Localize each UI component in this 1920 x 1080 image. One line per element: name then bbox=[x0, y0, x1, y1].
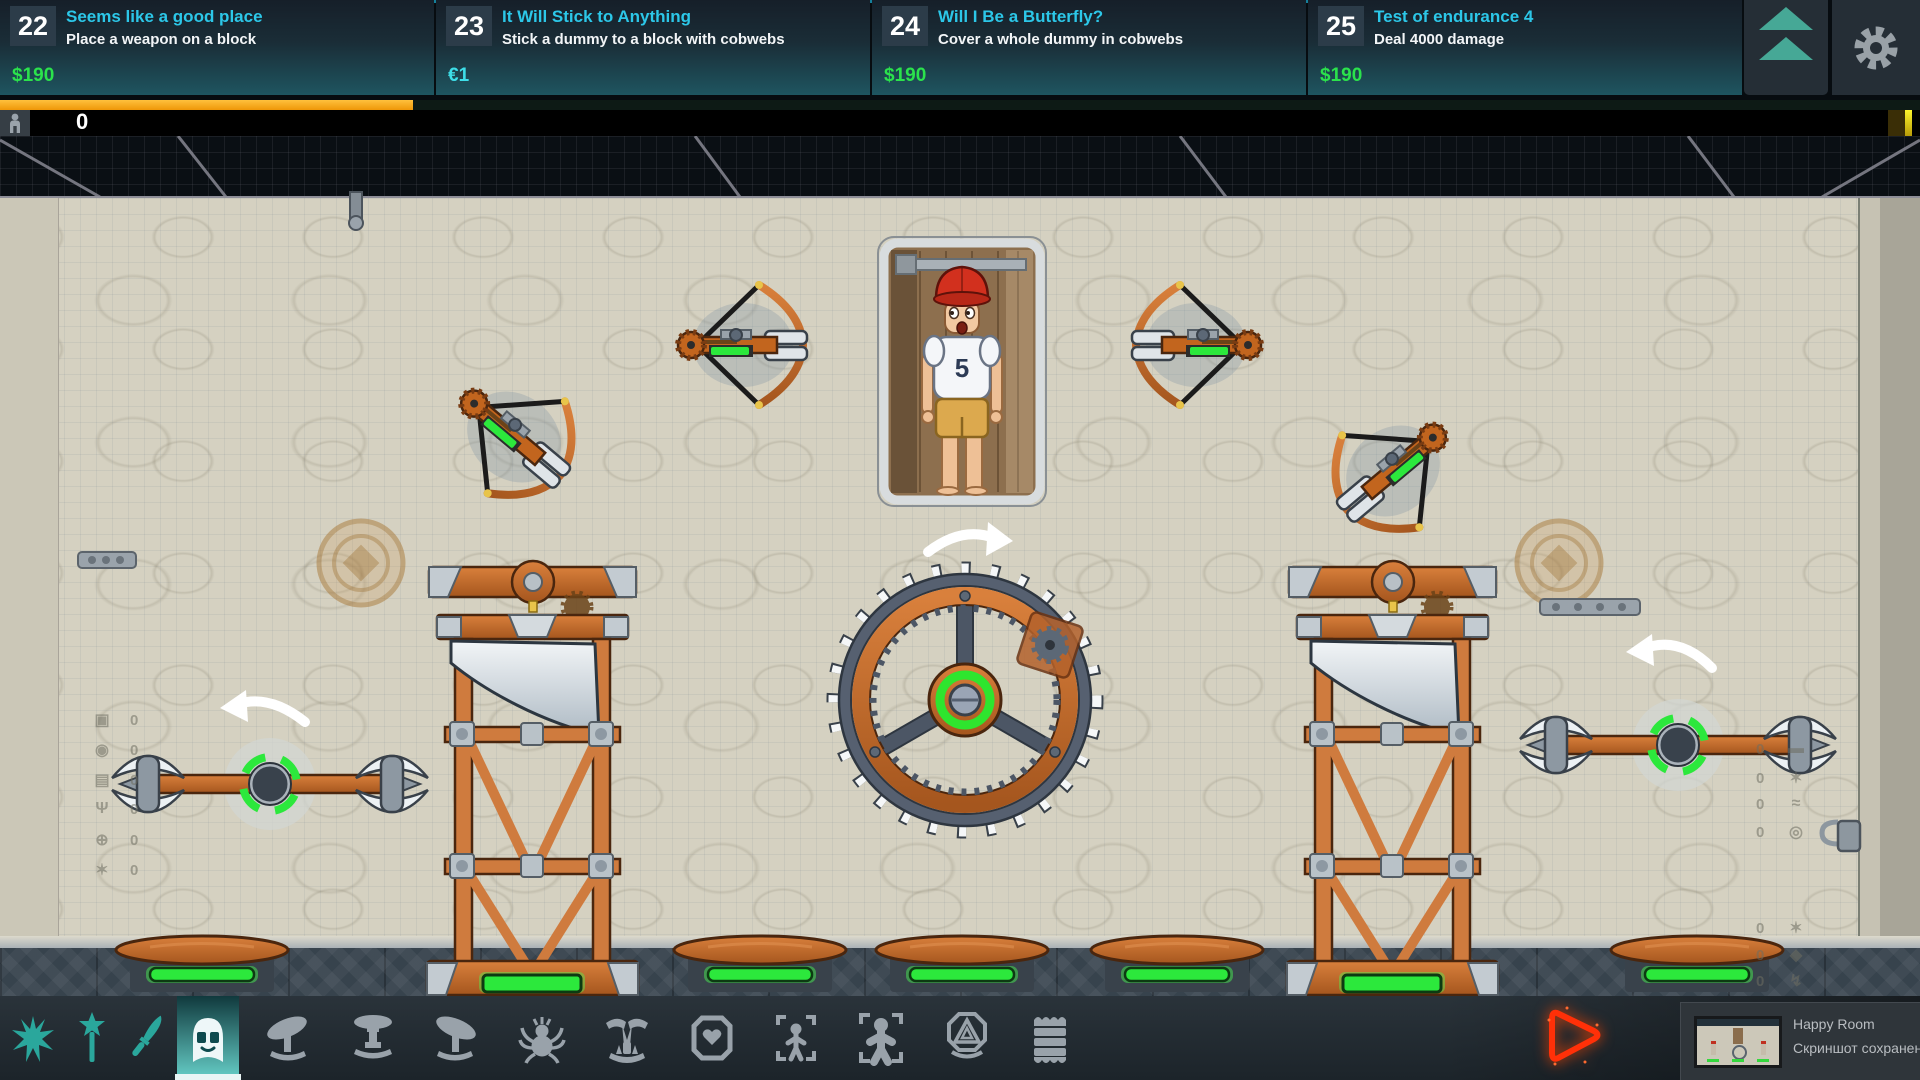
quest-title: Will I Be a Butterfly? bbox=[938, 7, 1103, 27]
quest-description: Place a weapon on a block bbox=[66, 31, 256, 48]
floor-pad bbox=[1611, 936, 1783, 992]
quest-bar: 22 Seems like a good place Place a weapo… bbox=[0, 0, 1920, 100]
damage-goal-zone bbox=[1888, 110, 1905, 136]
floor-pad bbox=[116, 936, 288, 992]
knife-icon bbox=[123, 1010, 171, 1066]
quest-reward: $190 bbox=[1320, 65, 1362, 87]
damage-counter: 0 bbox=[76, 109, 88, 135]
quest-reward: $190 bbox=[12, 65, 54, 87]
guillotine-right[interactable] bbox=[1287, 561, 1498, 995]
rune-emblem-icon bbox=[943, 1010, 991, 1066]
scene-objects: 5 bbox=[0, 136, 1920, 996]
rotation-arrow-right-spinner bbox=[1626, 634, 1712, 668]
settings-button[interactable] bbox=[1832, 0, 1920, 95]
wall-rosette-right bbox=[1517, 521, 1601, 605]
quest-description: Cover a whole dummy in cobwebs bbox=[938, 31, 1183, 48]
rotation-arrow-left-spinner bbox=[220, 690, 305, 722]
padlock bbox=[1822, 821, 1860, 851]
crossbow-1[interactable] bbox=[423, 346, 604, 527]
spider-icon bbox=[518, 1010, 566, 1066]
spikes-icon bbox=[9, 1010, 57, 1066]
floor-pad bbox=[674, 936, 846, 992]
screenshot-thumbnail bbox=[1694, 1016, 1782, 1068]
damage-goal-marker bbox=[1905, 110, 1912, 136]
quest-title: It Will Stick to Anything bbox=[502, 7, 691, 27]
claw-trap-icon bbox=[603, 1010, 651, 1066]
quest-progress-fill bbox=[0, 100, 413, 110]
play-button[interactable] bbox=[1537, 1000, 1609, 1072]
tool-saw-launcher-left[interactable] bbox=[257, 996, 319, 1080]
quest-title: Test of endurance 4 bbox=[1374, 7, 1533, 27]
quest-progress-track bbox=[0, 100, 1920, 110]
notification-message: Скриншот сохранен bbox=[1793, 1040, 1920, 1056]
quest-number: 25 bbox=[1318, 6, 1364, 46]
saw-launcher-left-icon bbox=[264, 1010, 312, 1066]
tool-spikes[interactable] bbox=[2, 996, 64, 1080]
floor-pad bbox=[1091, 936, 1263, 992]
quest-reward: $190 bbox=[884, 65, 926, 87]
person-icon bbox=[7, 113, 23, 133]
quest-number: 24 bbox=[882, 6, 928, 46]
saw-launcher-right-icon bbox=[431, 1010, 479, 1066]
axe-spinner-right[interactable] bbox=[1520, 699, 1836, 791]
tool-knife[interactable] bbox=[116, 996, 178, 1080]
quest-description: Stick a dummy to a block with cobwebs bbox=[502, 31, 785, 48]
quest-card-25[interactable]: 25 Test of endurance 4 Deal 4000 damage … bbox=[1308, 0, 1742, 95]
press-table-icon bbox=[349, 1010, 397, 1066]
weapon-toolbar bbox=[0, 996, 1920, 1080]
tool-spider[interactable] bbox=[511, 996, 573, 1080]
screenshot-notification: Happy Room Скриншот сохранен bbox=[1680, 1002, 1920, 1080]
ceiling-lines bbox=[0, 136, 1920, 197]
tool-coil-stack[interactable] bbox=[1019, 996, 1081, 1080]
player-chip bbox=[0, 110, 30, 136]
quest-panel-toggle-button[interactable] bbox=[1744, 0, 1828, 95]
happy-room-screen: 22 Seems like a good place Place a weapo… bbox=[0, 0, 1920, 1080]
crossbow-2[interactable] bbox=[678, 281, 807, 409]
room-scene: 5 ▣ 0 ◉ 0 ▤ 0 bbox=[0, 136, 1920, 996]
tool-press-table[interactable] bbox=[342, 996, 404, 1080]
wall-rosette-left bbox=[319, 521, 403, 605]
quest-number: 23 bbox=[446, 6, 492, 46]
spiked-wheel[interactable] bbox=[835, 570, 1095, 830]
tool-rune-emblem[interactable] bbox=[936, 996, 998, 1080]
wall-winch bbox=[349, 192, 363, 230]
quest-card-23[interactable]: 23 It Will Stick to Anything Stick a dum… bbox=[436, 0, 870, 95]
crossbow-3[interactable] bbox=[1132, 281, 1261, 409]
rotation-arrow-wheel bbox=[928, 522, 1013, 556]
dummy-box[interactable]: 5 bbox=[878, 237, 1046, 506]
tool-dummy-large[interactable] bbox=[850, 996, 912, 1080]
gear-icon bbox=[1849, 21, 1903, 75]
dummy-large-icon bbox=[857, 1010, 905, 1066]
tool-heart-crate[interactable] bbox=[681, 996, 743, 1080]
notification-app-name: Happy Room bbox=[1793, 1016, 1875, 1032]
helmet-icon bbox=[184, 1010, 232, 1066]
quest-description: Deal 4000 damage bbox=[1374, 31, 1504, 48]
quest-card-22[interactable]: 22 Seems like a good place Place a weapo… bbox=[0, 0, 434, 95]
axe-spinner-left[interactable] bbox=[112, 738, 428, 830]
damage-bar: 0 bbox=[0, 110, 1920, 136]
selected-tool-underline bbox=[175, 1074, 241, 1080]
floor-pad bbox=[876, 936, 1048, 992]
tool-claw-trap[interactable] bbox=[596, 996, 658, 1080]
wall-ledge-right bbox=[1540, 599, 1640, 615]
star-wand-icon bbox=[68, 1010, 116, 1066]
tool-saw-launcher-right[interactable] bbox=[424, 996, 486, 1080]
play-triangle-icon bbox=[1537, 1000, 1609, 1072]
tool-dummy-small[interactable] bbox=[765, 996, 827, 1080]
quest-title: Seems like a good place bbox=[66, 7, 263, 27]
up-arrow-icon bbox=[1759, 37, 1813, 60]
heart-crate-icon bbox=[688, 1010, 736, 1066]
crossbow-4[interactable] bbox=[1303, 380, 1484, 561]
coil-stack-icon bbox=[1026, 1010, 1074, 1066]
up-arrow-icon bbox=[1759, 7, 1813, 30]
tool-helmet[interactable] bbox=[177, 996, 239, 1080]
dummy-shirt-number: 5 bbox=[955, 353, 969, 383]
wall-ledge-left bbox=[78, 552, 136, 568]
guillotine-left[interactable] bbox=[427, 561, 638, 995]
quest-card-24[interactable]: 24 Will I Be a Butterfly? Cover a whole … bbox=[872, 0, 1306, 95]
quest-number: 22 bbox=[10, 6, 56, 46]
dummy-small-icon bbox=[772, 1010, 820, 1066]
quest-reward: €1 bbox=[448, 65, 469, 87]
tool-star-wand[interactable] bbox=[61, 996, 123, 1080]
